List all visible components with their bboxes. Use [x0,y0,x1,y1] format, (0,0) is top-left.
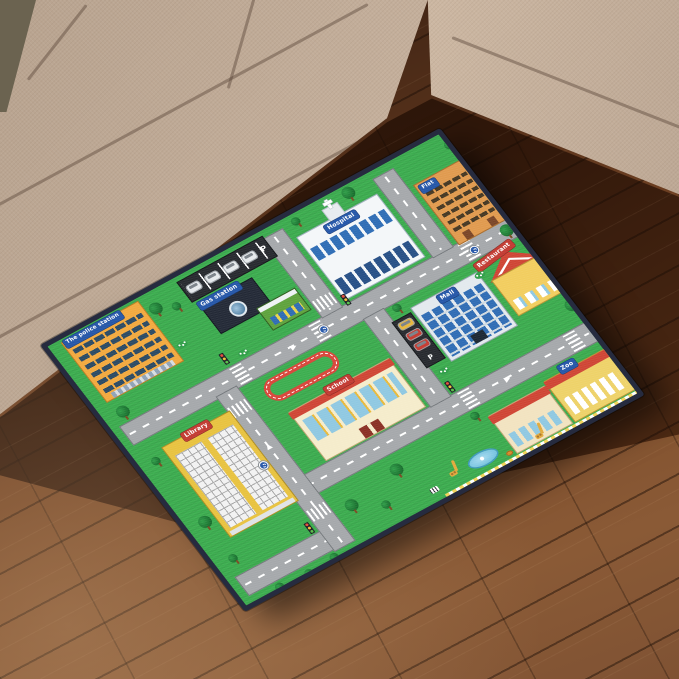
sofa-corner-shadow [0,0,36,112]
lion-icon [505,449,514,456]
flower-bush-icon [437,366,451,377]
parking-letter: P [427,354,436,362]
tree-icon [289,216,302,227]
giraffe-icon [442,459,462,477]
tree-icon [113,403,132,419]
product-photo-scene: The police station P Gas station [0,0,679,679]
flower-bush-icon [175,339,189,350]
gas-station-globe-icon [226,298,251,320]
tree-icon [226,553,239,564]
sofa-seam [227,0,256,89]
car-icon [412,337,432,352]
tree-icon [273,581,286,592]
sofa-seam [27,4,88,81]
traffic-light-icon [218,353,230,366]
tree-icon [146,300,165,316]
tree-icon [387,461,406,477]
tree-icon [379,499,392,510]
tree-icon [339,185,358,201]
tree-icon [342,497,361,513]
library-label: Library [183,421,210,439]
gas-station-shop [258,289,311,330]
tree-icon [170,301,183,312]
zebra-icon [429,485,441,494]
tree-icon [149,455,162,466]
tree-icon [390,302,403,313]
police-station-windows [72,313,175,395]
tree-icon [328,552,341,563]
library-building: Library [163,412,298,537]
hospital-cross-icon [324,200,333,209]
tree-icon [468,410,481,421]
tree-icon [195,514,214,530]
tree-icon [302,567,315,578]
zoo-house-windows [563,370,628,414]
